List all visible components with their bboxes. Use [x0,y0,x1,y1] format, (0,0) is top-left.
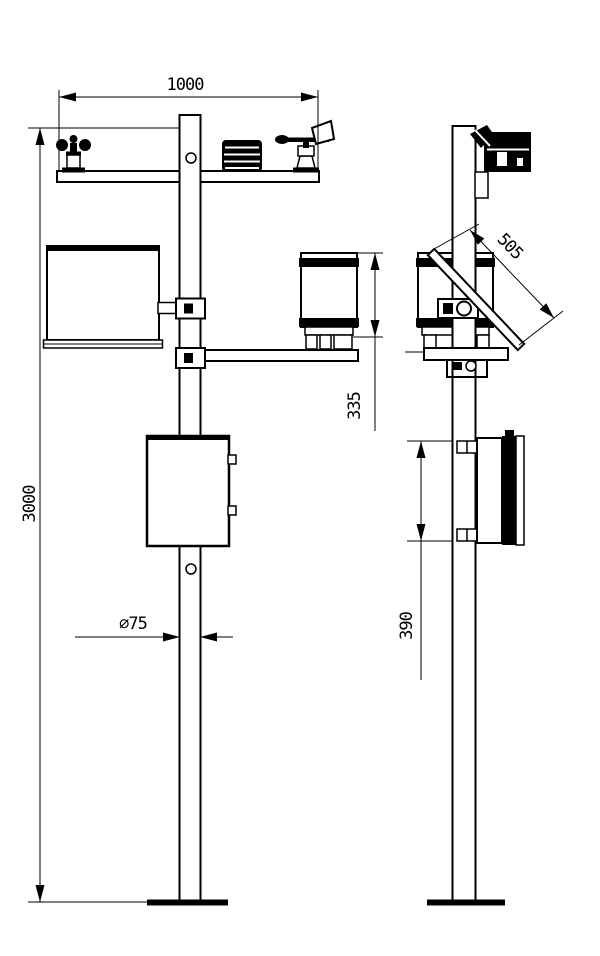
arrowhead [371,253,380,270]
enclosure-front [147,435,236,546]
solar-panel-front [44,246,181,348]
enclosure-door-face [516,436,524,545]
rain-gauge-foot [334,335,352,349]
solar-panel-face [47,246,159,340]
dim-label-enclosure-height: 390 [397,611,417,639]
weather-station-installation-drawing: 1000 3000 ∅75 335 505 390 [0,0,600,956]
wind-vane-fin [312,121,334,144]
mounting-base-side [427,900,505,906]
radiation-shield [222,140,262,172]
arrowhead [200,633,217,642]
enclosure-top-tab [505,430,514,437]
pole-hole-top [186,153,196,163]
rain-gauge-arm-side [424,348,508,360]
rain-gauge-front [299,253,359,349]
arrowhead [371,320,380,337]
clamp-bolt [443,303,453,314]
pole-hole-mid [186,564,196,574]
arrowhead [163,633,180,642]
front-view [44,115,360,906]
pole-clamp-lower [176,348,205,368]
wind-vane [275,121,334,173]
arrowhead [36,128,45,145]
crossarm-end-side [475,172,488,198]
rain-gauge-top-band [299,258,359,267]
clamp-bolt [184,353,193,363]
rain-gauge-foot [477,335,489,349]
solar-panel-top-edge [47,246,159,251]
anemometer-hub [70,135,78,143]
technical-drawing-page: 1000 3000 ∅75 335 505 390 [0,0,600,956]
anemometer-cup-right [79,139,91,151]
sensor-gap [517,158,523,166]
anemometer [56,135,91,173]
pole-clamp-upper [176,299,205,319]
dim-label-crossarm-span: 1000 [167,75,205,95]
sensor-cluster-side [470,125,531,172]
sensor-block [484,132,531,172]
anemometer-cup-left [56,139,68,151]
extension-line [519,311,563,345]
enclosure-box [147,436,229,546]
enclosure-door-edge [502,436,516,545]
mounting-base-front [147,900,228,906]
clamp-nut [457,302,471,316]
sensor-gap [497,152,507,166]
rain-gauge-lower-body [305,327,353,335]
dim-label-pole-height: 3000 [20,485,40,523]
wind-vane-nose [275,135,289,144]
clamp-bolt [184,304,193,314]
anemometer-collar [66,152,81,156]
dim-pole-diameter [75,633,233,642]
dim-label-solar-panel-length: 505 [493,230,527,264]
arrowhead [59,93,76,102]
arrowhead [301,93,318,102]
rain-gauge-foot [306,335,317,349]
bracket-bolt [452,362,462,370]
arrowhead [36,885,45,902]
anemometer-shaft [70,143,77,152]
bracket-nut [466,361,476,371]
main-pole-side [453,126,476,902]
wind-vane-body [297,156,315,168]
arrowhead [417,524,426,541]
enclosure-back-plate [477,438,502,543]
arrowhead [417,441,426,458]
enclosure-top-edge [147,435,229,440]
rain-gauge-foot [424,335,436,349]
enclosure-hinge-bottom [228,506,236,515]
dim-label-pole-diameter: ∅75 [119,614,147,634]
enclosure-hinge-top [228,455,236,464]
rain-gauge-arm [205,350,358,361]
anemometer-body [67,155,80,168]
rain-gauge-bottom-band [299,318,359,327]
rain-gauge-foot [320,335,331,349]
dim-label-rain-gauge-height: 335 [345,392,365,420]
dim-enclosure-height [407,441,453,680]
